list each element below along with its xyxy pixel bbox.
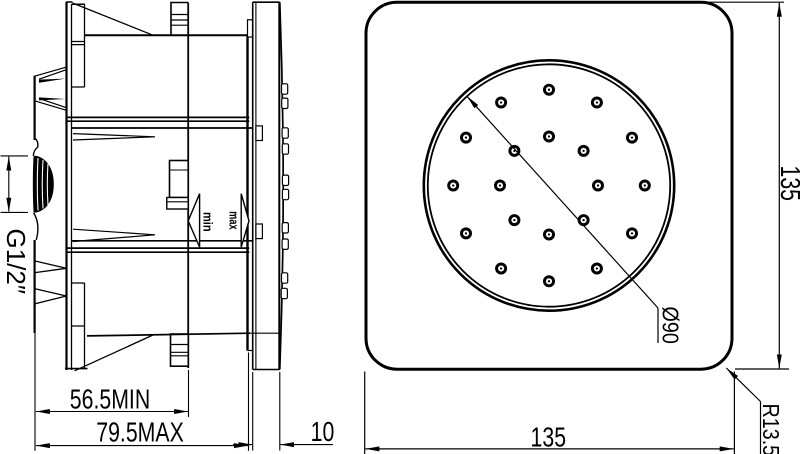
svg-text:79.5MAX: 79.5MAX bbox=[96, 417, 184, 449]
svg-text:10: 10 bbox=[311, 416, 335, 448]
svg-text:G1/2″: G1/2″ bbox=[1, 229, 31, 295]
svg-text:56.5MIN: 56.5MIN bbox=[70, 384, 150, 416]
svg-text:Ø90: Ø90 bbox=[657, 307, 684, 344]
svg-text:max: max bbox=[226, 211, 240, 230]
svg-text:135: 135 bbox=[531, 422, 566, 454]
svg-text:135: 135 bbox=[774, 166, 800, 201]
svg-text:R13.5: R13.5 bbox=[758, 404, 785, 454]
svg-text:min: min bbox=[200, 212, 215, 232]
